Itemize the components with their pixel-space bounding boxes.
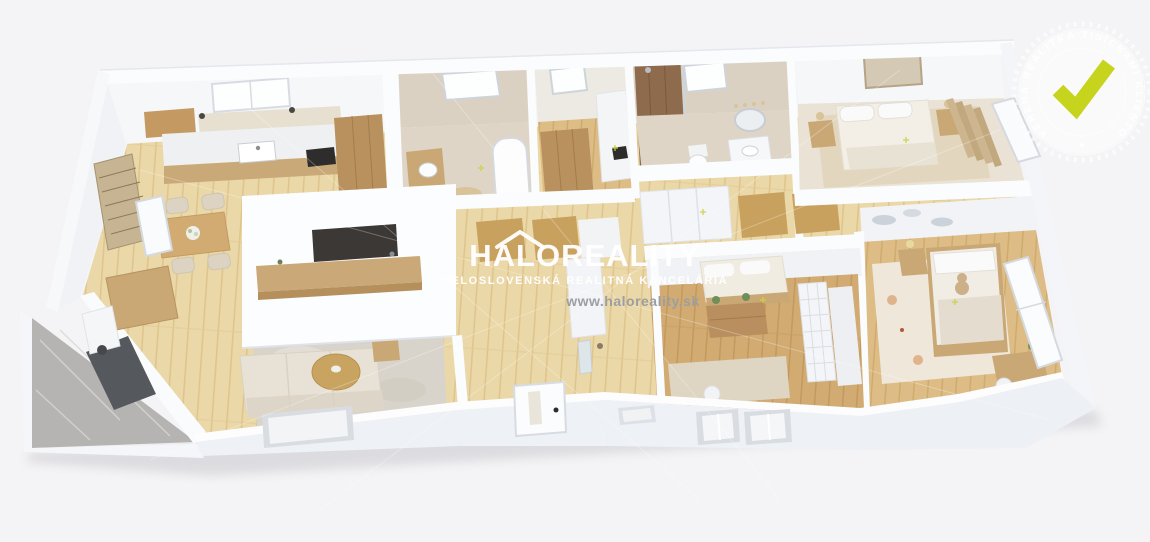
pillow (704, 263, 735, 278)
shower-head-icon (645, 67, 651, 73)
wall-lamp-icon (289, 107, 295, 113)
plant-icon (712, 296, 720, 304)
door-glass (528, 391, 542, 425)
tile-patch (578, 217, 622, 259)
sink (742, 146, 758, 156)
wall-lamp-icon (199, 113, 205, 119)
door-handle-icon (554, 408, 559, 413)
dining-chair (165, 197, 189, 215)
hall-wardrobe (640, 186, 732, 244)
faucet-icon (256, 146, 260, 150)
closet (534, 54, 636, 206)
nightstand (898, 248, 928, 276)
stool (97, 345, 107, 355)
closet-window (550, 66, 587, 94)
wall-art (864, 54, 922, 88)
pillow (933, 250, 996, 274)
dining-chair (201, 193, 225, 211)
kids-blanket (938, 295, 1004, 345)
cloud-decal-icon (872, 215, 896, 225)
floorplan-render (0, 0, 1150, 542)
cloud-decal-icon (903, 209, 921, 217)
plant-icon (742, 293, 750, 301)
mirror (735, 109, 765, 131)
table-lamp-icon (816, 112, 824, 120)
dresser (106, 266, 178, 330)
dining-chair (171, 257, 195, 275)
bath2-window (684, 62, 727, 92)
cooktop (306, 147, 336, 167)
flower-vase (186, 226, 200, 240)
bathroom-with-shower (632, 48, 796, 172)
runner-rug (476, 218, 526, 262)
nightstand (808, 120, 836, 148)
table-lamp-icon (906, 240, 914, 248)
pillow (840, 105, 875, 122)
sink (419, 163, 437, 177)
floorplan-screenshot: HALOREALITY CELOSLOVENSKÁ REALITNÁ KANCE… (0, 0, 1150, 542)
coat-hook-icon (597, 343, 603, 349)
tv-screen (312, 224, 398, 262)
entry-mirror (578, 340, 592, 374)
kitchen-sink (238, 141, 276, 163)
pillow (740, 260, 771, 275)
tv-wall (242, 184, 456, 348)
cabinet-white (596, 90, 632, 182)
side-table (372, 340, 400, 362)
runner-rug (532, 216, 580, 260)
pillow (878, 102, 913, 119)
second-bedroom (646, 248, 864, 418)
dining-chair (207, 253, 231, 271)
cloud-decal-icon (931, 218, 953, 227)
